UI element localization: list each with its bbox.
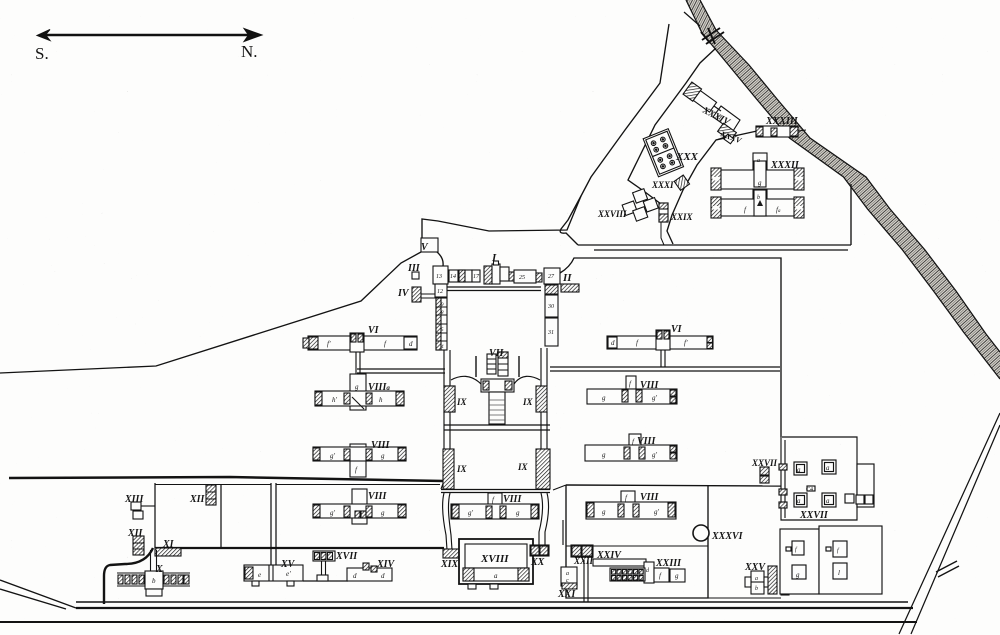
- svg-text:I: I: [491, 252, 497, 264]
- svg-text:XXXVI: XXXVI: [711, 531, 744, 542]
- svg-text:f': f': [327, 340, 331, 348]
- svg-text:XXIV: XXIV: [596, 550, 622, 561]
- svg-text:a: a: [826, 464, 830, 472]
- svg-text:IX: IX: [456, 397, 468, 407]
- svg-text:XII: XII: [127, 528, 144, 539]
- svg-text:g: g: [602, 508, 606, 516]
- svg-text:VIII: VIII: [371, 440, 390, 451]
- svg-text:b: b: [755, 586, 758, 592]
- svg-text:f': f': [684, 339, 688, 347]
- svg-text:IX: IX: [517, 462, 529, 472]
- svg-text:g: g: [381, 452, 385, 460]
- svg-text:h: h: [379, 396, 383, 404]
- svg-text:g: g: [602, 451, 606, 459]
- svg-text:a: a: [797, 466, 801, 474]
- svg-text:VI: VI: [368, 325, 380, 336]
- svg-text:c: c: [566, 578, 569, 584]
- svg-text:d: d: [381, 572, 385, 580]
- svg-text:g: g: [758, 179, 762, 187]
- svg-text:XIII: XIII: [124, 494, 144, 505]
- svg-text:XXXI: XXXI: [651, 180, 674, 190]
- svg-text:13: 13: [436, 274, 442, 280]
- svg-text:XXII: XXII: [573, 556, 594, 566]
- svg-text:g': g': [330, 452, 336, 460]
- svg-text:XXV: XXV: [744, 562, 766, 573]
- svg-text:a: a: [494, 572, 498, 580]
- svg-text:N.: N.: [241, 42, 258, 61]
- svg-text:XVIII: XVIII: [480, 553, 509, 565]
- svg-text:C4: C4: [806, 487, 813, 493]
- svg-text:S.: S.: [35, 44, 49, 63]
- svg-text:d: d: [611, 339, 615, 347]
- svg-text:XI: XI: [162, 539, 175, 550]
- svg-text:XXVII: XXVII: [751, 458, 778, 468]
- svg-text:g': g': [330, 509, 336, 517]
- svg-text:XIV: XIV: [376, 559, 396, 570]
- svg-text:a: a: [797, 497, 801, 505]
- svg-text:XXX: XXX: [675, 151, 699, 163]
- svg-text:IX: IX: [456, 464, 468, 474]
- svg-text:31: 31: [547, 330, 554, 336]
- svg-text:XXXIII: XXXIII: [765, 116, 799, 127]
- svg-text:a: a: [757, 158, 760, 164]
- svg-text:d: d: [409, 340, 413, 348]
- svg-text:a: a: [755, 576, 758, 582]
- svg-text:VIII: VIII: [637, 436, 656, 447]
- svg-text:XXVIII: XXVIII: [597, 209, 627, 219]
- svg-text:14: 14: [450, 273, 456, 280]
- svg-text:a: a: [566, 571, 569, 577]
- svg-text:g: g: [602, 394, 606, 402]
- svg-text:25: 25: [519, 275, 525, 281]
- svg-text:XXI: XXI: [557, 589, 576, 600]
- svg-text:e': e': [286, 570, 291, 578]
- svg-text:III: III: [407, 263, 421, 274]
- svg-text:XXIX: XXIX: [670, 212, 694, 222]
- svg-text:l: l: [838, 569, 840, 577]
- svg-text:XXIII: XXIII: [655, 558, 682, 569]
- svg-text:g': g': [468, 509, 474, 517]
- svg-text:12: 12: [437, 289, 443, 295]
- svg-text:e: e: [258, 571, 261, 579]
- svg-text:X: X: [155, 564, 163, 575]
- svg-text:h': h': [332, 396, 338, 404]
- svg-text:VI: VI: [671, 324, 683, 335]
- svg-text:d: d: [353, 572, 357, 580]
- svg-text:XIX: XIX: [440, 559, 459, 570]
- svg-text:XX: XX: [530, 557, 545, 568]
- svg-text:XXXII: XXXII: [770, 160, 800, 171]
- svg-text:VIII: VIII: [503, 494, 522, 505]
- svg-text:VII: VII: [489, 348, 505, 359]
- svg-text:XXVII: XXVII: [799, 510, 829, 521]
- svg-text:VIII: VIII: [640, 380, 659, 391]
- svg-text:g: g: [381, 509, 385, 517]
- svg-text:b: b: [757, 195, 760, 201]
- svg-text:XII: XII: [189, 494, 206, 505]
- svg-text:g': g': [652, 394, 658, 402]
- svg-text:VIII: VIII: [640, 492, 659, 503]
- svg-text:XVII: XVII: [335, 551, 358, 562]
- svg-text:17: 17: [473, 274, 480, 280]
- svg-text:IV: IV: [397, 288, 410, 299]
- svg-text:VIIIa: VIIIa: [368, 382, 390, 393]
- svg-text:g: g: [796, 571, 800, 579]
- svg-text:30: 30: [547, 304, 554, 310]
- svg-text:g: g: [516, 509, 520, 517]
- svg-text:g': g': [654, 508, 660, 516]
- svg-text:27: 27: [548, 274, 555, 280]
- svg-text:a: a: [826, 497, 830, 505]
- svg-text:g: g: [355, 383, 359, 391]
- svg-text:II: II: [562, 272, 572, 284]
- svg-text:b: b: [152, 577, 156, 585]
- svg-text:VIII: VIII: [368, 491, 387, 502]
- svg-text:g: g: [675, 572, 679, 580]
- svg-text:g': g': [652, 451, 658, 459]
- svg-text:IX: IX: [522, 397, 534, 407]
- svg-text:XV: XV: [280, 559, 296, 570]
